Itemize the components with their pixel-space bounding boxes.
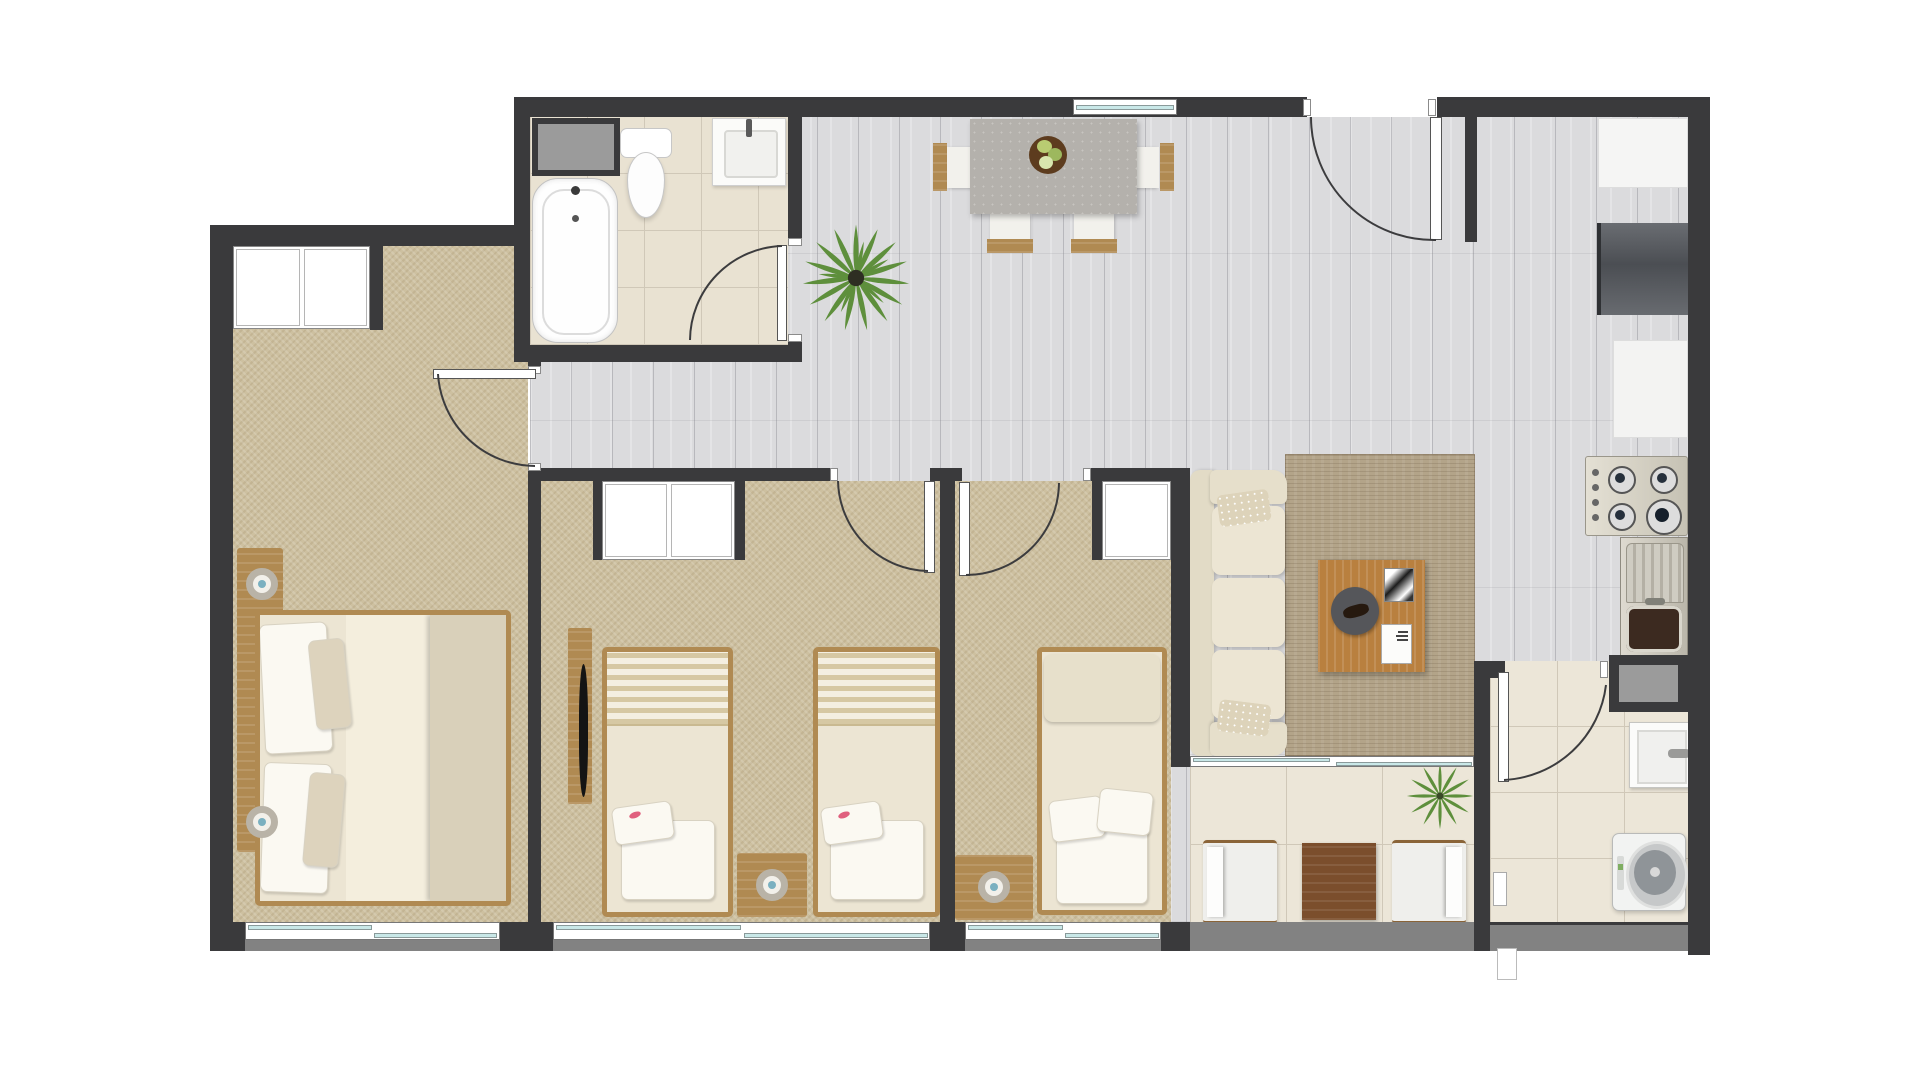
bathroom-door-jamb <box>788 238 802 246</box>
gray-cabinet <box>1619 665 1678 702</box>
chair-backrest <box>1207 847 1223 917</box>
pillow-small <box>1096 787 1154 836</box>
laundry-door-jamb <box>1600 661 1608 678</box>
bedroom3-lamp <box>978 871 1010 903</box>
master-door-leaf <box>433 369 536 379</box>
bed-head-cushion <box>607 652 728 726</box>
stove-knob <box>1592 499 1599 506</box>
bed-head-cushion <box>818 652 935 726</box>
wall-kitchen-stub <box>1465 117 1477 242</box>
laundry-sink <box>1629 722 1691 788</box>
dining-chair-bottom2-seat <box>1074 214 1114 241</box>
terrace-balcony-edge <box>1190 922 1474 951</box>
sofa <box>1190 470 1287 756</box>
bedroom2-window <box>553 922 930 940</box>
sink-bowl <box>1626 606 1682 652</box>
plant-dining <box>798 220 914 336</box>
bedroom2-door-jamb <box>830 468 838 481</box>
kitchen-counter-mid <box>1613 340 1688 438</box>
bedroom3-door-leaf <box>959 482 970 576</box>
book-text <box>1396 635 1408 637</box>
top-wall-window <box>1073 99 1177 115</box>
laundry-drain-tab <box>1497 948 1517 980</box>
fruit <box>1039 156 1053 169</box>
art-print <box>1384 568 1414 602</box>
tv-icon <box>579 664 588 797</box>
dining-chair-left-back <box>933 143 947 191</box>
sofa-pillow <box>1216 699 1272 737</box>
bathtub-drain <box>572 215 579 222</box>
wall-closet2-stub-right <box>735 478 745 560</box>
stove-knob <box>1592 514 1599 521</box>
washer-agitator <box>1650 867 1660 877</box>
master-window <box>245 922 500 940</box>
wardrobe-door <box>304 249 368 326</box>
wardrobe-door <box>236 249 300 326</box>
wall-closet3-stub <box>1092 478 1102 560</box>
wall-closet2-stub-left <box>593 478 602 560</box>
accent-pillow <box>302 772 346 869</box>
dining-chair-bottom1-back <box>987 239 1033 253</box>
wall-master-closet-stub <box>370 246 383 330</box>
wardrobe-door <box>671 484 733 557</box>
refrigerator <box>1597 223 1688 315</box>
wall-top-right-segment <box>1437 97 1710 117</box>
gas-stove <box>1585 456 1688 536</box>
bedroom2-single-bed-left <box>602 647 733 917</box>
tray-item <box>1342 602 1370 620</box>
wardrobe-door <box>1105 484 1168 557</box>
bedroom2-wardrobe <box>602 481 735 560</box>
bathroom-door-jamb <box>788 334 802 342</box>
sink-faucet <box>1645 598 1665 605</box>
washer-controls <box>1617 856 1624 890</box>
laundry-faucet <box>1668 749 1690 758</box>
bedroom2-window-sill <box>553 940 930 951</box>
bedroom3-window <box>965 922 1161 940</box>
stove-knob <box>1592 484 1599 491</box>
dining-chair-left-seat <box>947 147 971 188</box>
wall-bedroom2-3 <box>940 468 955 951</box>
book-text <box>1397 639 1408 641</box>
bedroom3-window-sill <box>965 940 1161 951</box>
terrace-chair-right <box>1392 840 1466 924</box>
wall-hallway-bottom-left <box>541 468 837 481</box>
burner-cap <box>1655 508 1669 522</box>
fruit-bowl <box>1029 136 1067 174</box>
master-window-sill <box>245 940 500 951</box>
bedroom3-wardrobe <box>1102 481 1171 560</box>
drainboard <box>1626 543 1684 603</box>
wardrobe-door <box>605 484 667 557</box>
plant-terrace <box>1404 760 1476 832</box>
wall-laundry-left <box>1474 661 1490 951</box>
window-pane <box>1193 758 1330 762</box>
wall-bedroom3-living <box>1171 468 1190 767</box>
wall-right-exterior <box>1688 97 1710 955</box>
bathtub <box>532 178 618 343</box>
window-pane <box>1336 762 1472 766</box>
book-text <box>1398 631 1408 633</box>
wall-bathroom-right-lower <box>788 341 802 362</box>
master-lamp-bottom <box>246 806 278 838</box>
window-pane <box>968 925 1063 930</box>
art-book <box>1381 624 1412 664</box>
kitchen-counter-top <box>1598 118 1688 188</box>
floor-plan <box>0 0 1920 1080</box>
bathtub-faucet <box>571 186 580 195</box>
stove-knob <box>1592 469 1599 476</box>
window-pane <box>374 933 497 938</box>
window-pane <box>744 933 928 938</box>
master-lamp-top <box>246 568 278 600</box>
bed-head-cushion <box>1044 654 1160 722</box>
wall-partition-master-lower <box>528 467 541 951</box>
washing-machine <box>1612 833 1686 911</box>
bathtub-inner <box>542 189 610 335</box>
window-pane <box>556 925 741 930</box>
terrace-table <box>1302 843 1376 920</box>
terrace-chair-left <box>1203 840 1277 924</box>
utility-shaft <box>532 118 620 176</box>
bedroom2-single-bed-right <box>813 647 940 917</box>
master-door-jamb <box>528 463 541 471</box>
living-sliding-window <box>1190 756 1474 767</box>
vanity-sink <box>724 130 778 178</box>
wall-bathroom-right-upper <box>788 117 802 245</box>
wall-unit-intercom <box>1493 872 1507 906</box>
burner-cap <box>1615 473 1625 483</box>
dining-chair-right-seat <box>1135 147 1159 188</box>
kitchen-sink-unit <box>1620 537 1688 657</box>
bedroom3-single-bed <box>1037 647 1167 915</box>
wall-top-left-segment <box>514 97 1307 117</box>
window-pane <box>1076 105 1174 110</box>
entry-door-leaf <box>1430 117 1442 240</box>
wall-left-exterior <box>210 225 233 951</box>
dining-chair-right-back <box>1160 143 1174 191</box>
window-pane <box>1065 933 1159 938</box>
bedroom3-door-jamb <box>1083 468 1091 481</box>
duvet-floral <box>346 615 430 901</box>
bedroom2-door-leaf <box>924 481 935 573</box>
dining-chair-bottom1-seat <box>990 214 1030 241</box>
dining-chair-bottom2-back <box>1071 239 1117 253</box>
laundry-door-leaf <box>1498 672 1509 782</box>
vanity-faucet <box>746 119 752 137</box>
vanity <box>712 118 786 186</box>
bathroom-door-leaf <box>777 245 787 341</box>
entry-door-jamb <box>1303 99 1311 116</box>
wall-bathroom-bottom <box>514 345 802 362</box>
sofa-cushion <box>1212 578 1285 647</box>
burner-cap <box>1615 510 1625 520</box>
entry-door-jamb <box>1428 99 1436 116</box>
wall-master-top <box>210 225 530 246</box>
burner-cap <box>1657 473 1667 483</box>
laundry-sill <box>1490 925 1688 951</box>
window-pane <box>248 925 372 930</box>
bedroom2-lamp <box>756 869 788 901</box>
chair-backrest <box>1446 847 1462 917</box>
round-tray <box>1331 587 1379 635</box>
master-double-bed <box>255 610 511 906</box>
washer-display <box>1618 864 1623 870</box>
sofa-backrest <box>1190 470 1214 756</box>
master-wardrobe <box>233 246 370 329</box>
bed-throw <box>430 615 506 901</box>
